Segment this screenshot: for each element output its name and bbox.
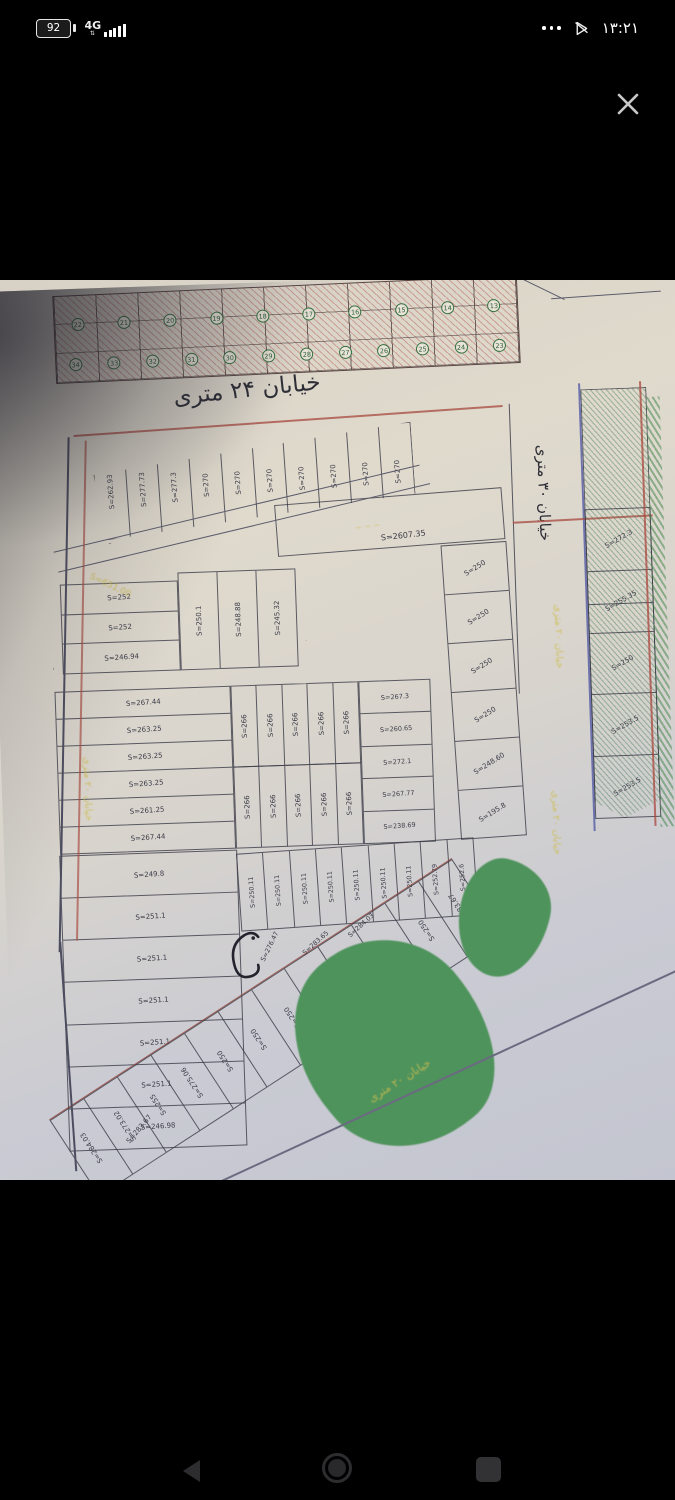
middle-right-plots: S=267.3S=260.65S=272.1S=267.77S=238.69 <box>358 679 436 844</box>
plot: S=255.35 <box>587 570 655 634</box>
plot-numbers-row2: 343332313029282726252423 <box>56 338 519 372</box>
plot: S=249.8 <box>59 850 238 899</box>
top-plot-strip: 22212019181716151413 3433323130292827262… <box>52 280 521 384</box>
plot: S=250 <box>444 591 513 644</box>
plot-number-badge: 32 <box>146 354 160 368</box>
plot-number-badge: 23 <box>493 339 507 353</box>
plot: S=266 <box>333 681 361 764</box>
plot: S=266 <box>285 764 313 847</box>
street-20m-label-a: خیابان ۲۰ متری <box>552 604 566 676</box>
street-20m-label-b: خیابان ۲۰ متری <box>549 790 563 872</box>
plot-number-badge: 25 <box>416 342 430 356</box>
plot: S=195.8 <box>458 786 527 839</box>
play-slash-icon <box>573 20 590 37</box>
plot-number-badge: 28 <box>300 347 314 361</box>
plot: S=245.32 <box>256 568 298 667</box>
plot: S=266 <box>233 766 262 849</box>
plot-number-badge: 27 <box>339 346 353 360</box>
plot: S=250 <box>451 689 520 742</box>
plot: S=266 <box>257 684 285 767</box>
plot-number-badge: 29 <box>262 349 276 363</box>
plot: S=238.69 <box>363 809 436 844</box>
plot-block-triangle: S=252S=252S=246.94 S=250.1S=248.88S=245.… <box>48 536 308 690</box>
back-icon[interactable] <box>183 1460 200 1482</box>
status-bar: 92 4G ⇅ ۱۳:۲۱ <box>0 0 675 56</box>
plot: S=260.65 <box>359 712 432 747</box>
plot-number-badge: 24 <box>454 340 468 354</box>
network-type: 4G ⇅ <box>85 20 102 37</box>
plot: S=272.3 <box>584 507 652 572</box>
map-content: 22212019181716151413 3433323130292827262… <box>0 280 675 1180</box>
android-nav-bar <box>0 1438 675 1500</box>
plot-number-badge: 22 <box>71 318 85 332</box>
more-dots-icon <box>542 26 561 30</box>
plot: S=251.1 <box>62 935 241 983</box>
plot: S=277.3 <box>156 437 195 536</box>
plot-number-badge: 33 <box>107 356 121 370</box>
home-icon[interactable] <box>322 1453 352 1483</box>
plot-number-badge: 14 <box>441 301 455 315</box>
plot: S=277.73 <box>124 440 163 539</box>
plot: S=266 <box>260 765 288 848</box>
plot: S=266 <box>308 682 336 765</box>
plot: S=267.77 <box>362 777 435 812</box>
plot-number-badge: 13 <box>487 299 501 313</box>
plot: S=266 <box>310 763 338 846</box>
battery-nub <box>73 24 76 32</box>
plot-number-badge: 15 <box>395 303 409 317</box>
handwritten-pen-mark <box>225 929 271 989</box>
street-30m-label: خیابان ۳۰ متری <box>533 444 556 575</box>
plot: S=248.88 <box>217 570 259 669</box>
recents-icon[interactable] <box>476 1457 501 1482</box>
plot-number-badge: 21 <box>117 316 131 330</box>
plot-number-badge: 19 <box>210 311 224 325</box>
plot: S=250 <box>447 640 516 693</box>
updown-arrows-icon: ⇅ <box>90 31 96 37</box>
plot-number-badge: 16 <box>348 305 362 319</box>
plot: S=270 <box>220 433 259 532</box>
map-photo[interactable]: 22212019181716151413 3433323130292827262… <box>0 280 675 1180</box>
plot: S=252 <box>61 611 180 645</box>
plot: S=266 <box>336 762 364 845</box>
big-plot-area-label: S=2607.35 <box>381 529 427 543</box>
plot: S=272.1 <box>361 745 434 780</box>
network-type-label: 4G <box>85 20 102 31</box>
boundary-red-line <box>74 405 503 437</box>
clock: ۱۳:۲۱ <box>602 19 639 37</box>
plot-numbers-row1: 22212019181716151413 <box>54 298 517 332</box>
plot: S=262.93 <box>91 442 131 541</box>
plot: S=250 <box>440 541 509 595</box>
plot-number-badge: 20 <box>163 314 177 328</box>
signal-bars-icon <box>104 24 125 37</box>
status-left: 92 4G ⇅ <box>36 19 126 38</box>
plot-number-badge: 30 <box>223 351 237 365</box>
battery-percent: 92 <box>36 19 71 38</box>
triangle-col-plots: S=250.1S=248.88S=245.32 <box>177 568 298 670</box>
middle-center-bottom-plots: S=266S=266S=266S=266S=266 <box>233 762 364 848</box>
plot: S=266 <box>230 685 259 768</box>
plot-block-mid-right: S=250S=250S=250S=250S=248.60S=195.8 <box>440 541 526 840</box>
screen: 92 4G ⇅ ۱۳:۲۱ <box>0 0 675 1500</box>
plot-number-badge: 18 <box>256 309 270 323</box>
plot: S=267.3 <box>358 679 431 715</box>
plot-number-badge: 17 <box>302 307 316 321</box>
plot: S=246.94 <box>62 641 181 675</box>
plot-number-badge: 31 <box>184 353 198 367</box>
plot: S=251.1 <box>61 893 240 941</box>
plot: S=253.5 <box>593 755 661 819</box>
street-edge-line <box>551 291 661 300</box>
plot: S=266 <box>282 683 310 766</box>
plot: S=248.60 <box>454 737 523 790</box>
middle-center-top-plots: S=266S=266S=266S=266S=266 <box>230 681 361 767</box>
network-indicator: 4G ⇅ <box>85 20 126 37</box>
plot-number-badge: 34 <box>69 358 83 372</box>
plot-number-badge: 26 <box>377 344 391 358</box>
battery-icon: 92 <box>36 19 76 38</box>
plot: S=250 <box>589 631 657 695</box>
close-button[interactable] <box>611 87 645 121</box>
close-icon <box>614 90 642 118</box>
status-right: ۱۳:۲۱ <box>542 19 639 37</box>
plot-block-middle: S=267.44S=263.25S=263.25S=263.25S=261.25… <box>54 679 435 855</box>
plot: S=250.1 <box>177 571 220 670</box>
plot: S=253.5 <box>591 693 659 757</box>
